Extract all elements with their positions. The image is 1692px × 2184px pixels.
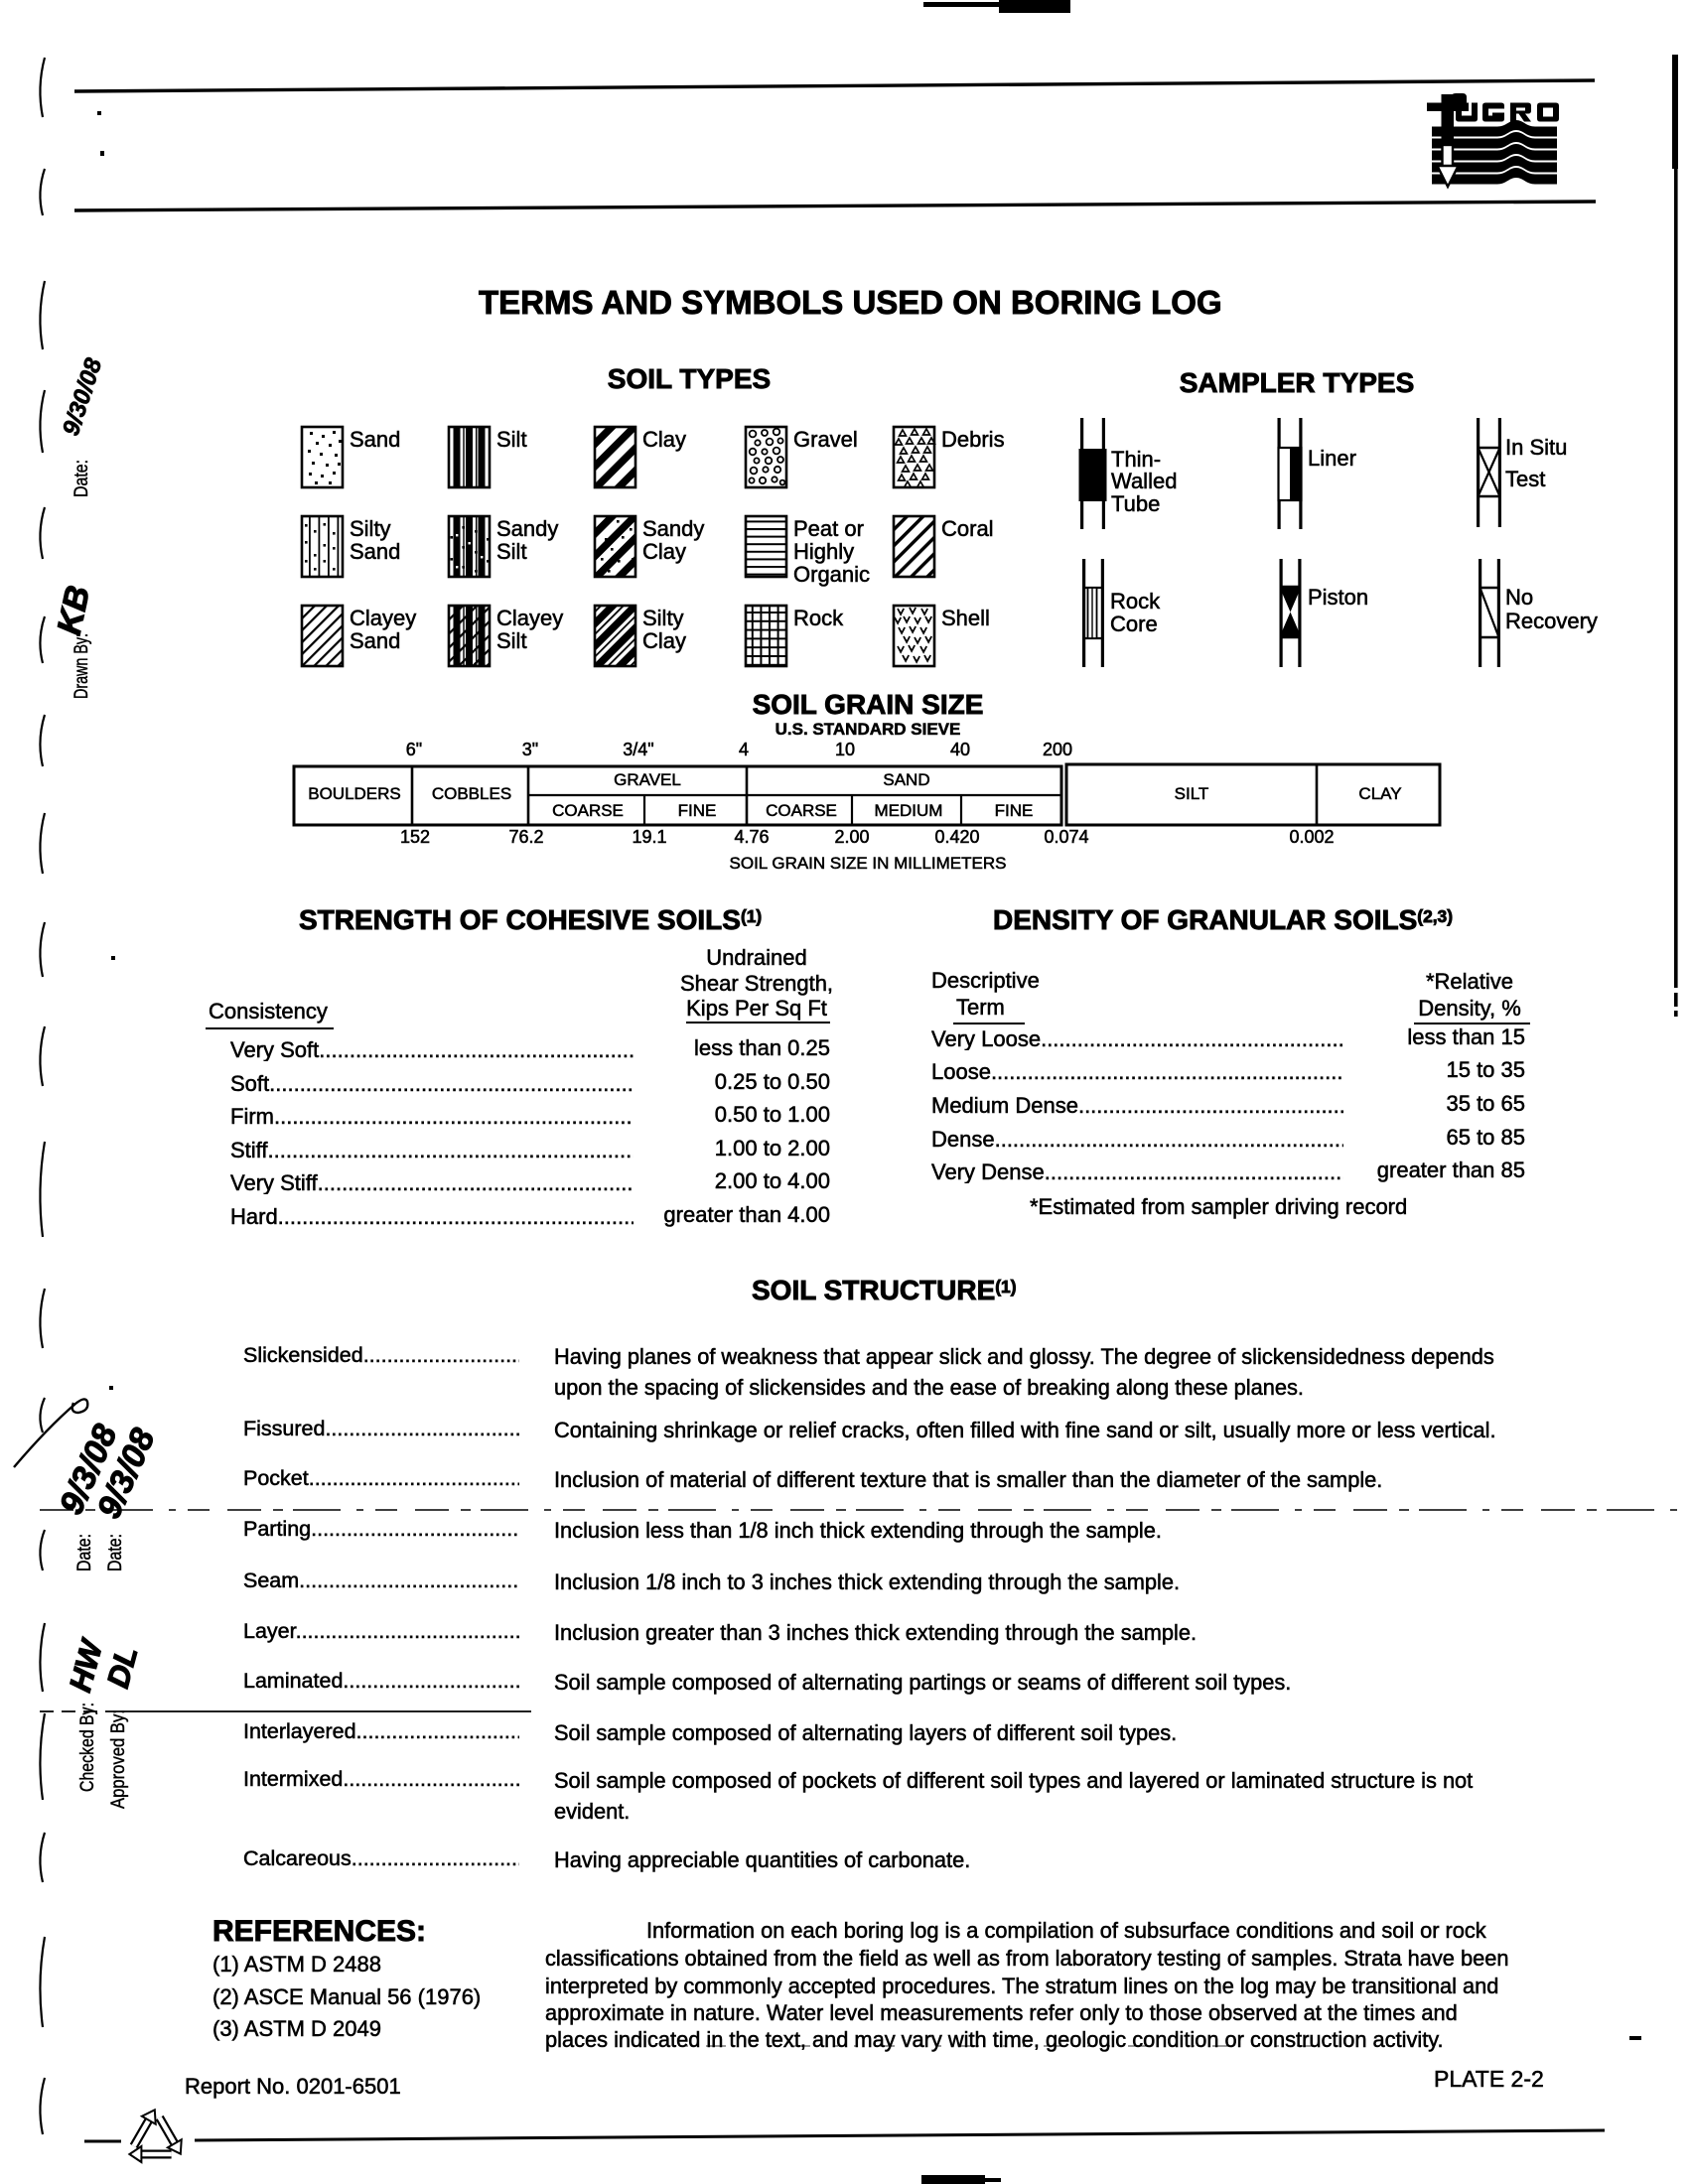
svg-text:9/30/08: 9/30/08	[58, 354, 108, 439]
svg-text:KB: KB	[51, 583, 97, 638]
svg-text:Date:: Date:	[104, 1534, 126, 1571]
svg-text:Drawn By:: Drawn By:	[70, 633, 92, 699]
svg-text:Date:: Date:	[70, 460, 92, 497]
svg-text:Date:: Date:	[73, 1534, 95, 1571]
svg-text:Approved By:: Approved By:	[107, 1709, 129, 1809]
svg-text:Checked By:: Checked By:	[76, 1703, 98, 1792]
svg-text:HW: HW	[63, 1634, 110, 1696]
